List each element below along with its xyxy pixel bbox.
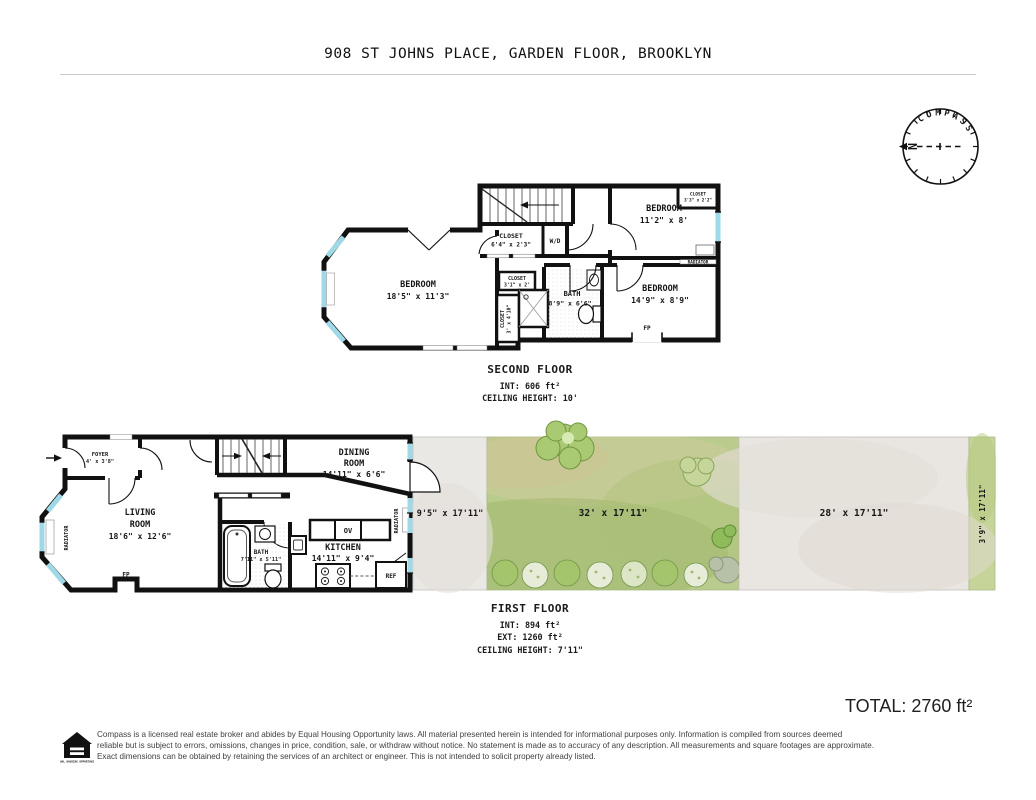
compass-icon: COMPASS N	[892, 98, 989, 195]
room-dims: 7'11" x 5'11"	[241, 557, 282, 563]
room-label: DINING	[339, 448, 370, 458]
disclaimer-line: Compass is a licensed real estate broker…	[97, 729, 981, 740]
floor-int: INT: 606 ft²	[330, 380, 730, 393]
room-label: BATH	[564, 290, 581, 298]
room-dims: 8'9" x 6'6"	[548, 300, 591, 308]
fridge-label: REF	[386, 573, 397, 580]
garden-dims: 32' x 17'11"	[579, 508, 648, 519]
radiator-label: RADIATOR	[64, 525, 70, 551]
floor-heading: SECOND FLOOR	[330, 362, 730, 379]
yard-dims: 28' x 17'11"	[820, 508, 889, 519]
oven-label: OV	[344, 527, 353, 535]
room-dims: 14'9" x 8'9"	[631, 296, 689, 305]
equal-housing-logo-icon: EQUAL HOUSING OPPORTUNITY	[60, 731, 94, 765]
floor-int: INT: 894 ft²	[330, 619, 730, 632]
window-sill	[110, 434, 132, 439]
room-label: CLOSET	[500, 310, 506, 328]
total-area: TOTAL: 2760 ft²	[845, 696, 972, 717]
shower	[519, 290, 548, 327]
room-label: FOYER	[92, 452, 109, 458]
radiator-label: RADIATOR	[688, 259, 709, 265]
bath-sink	[255, 526, 275, 542]
room-label: BEDROOM	[642, 284, 678, 294]
room-dims: 14'11" x 6'6"	[323, 470, 386, 479]
radiator-label: RADIATOR	[394, 508, 400, 534]
room-dims: 11'2" x 8'	[640, 216, 688, 225]
room-dims: 18'6" x 12'6"	[109, 532, 172, 541]
room-dims: 3'3" x 2'2"	[684, 198, 712, 203]
room-label: BATH	[254, 549, 269, 556]
room-label: BEDROOM	[646, 204, 682, 214]
washer-dryer-label: W/D	[550, 238, 561, 245]
toilet	[265, 564, 281, 588]
second-floor-plan: BEDROOM 18'5" x 11'3" CLOSET 6'4" x 2'3"…	[315, 180, 725, 352]
radiator-unit	[696, 245, 714, 255]
bath-sink	[587, 270, 601, 290]
room-label: BEDROOM	[400, 280, 436, 290]
floorplan-page: 908 ST JOHNS PLACE, GARDEN FLOOR, BROOKL…	[0, 0, 1036, 800]
kitchen-sink	[290, 536, 306, 554]
second-floor-stats: SECOND FLOOR INT: 606 ft² CEILING HEIGHT…	[330, 362, 730, 405]
room-dims: 6'4" x 2'3"	[491, 242, 531, 249]
fireplace	[632, 332, 662, 342]
radiator-unit	[46, 520, 54, 554]
bathtub	[224, 526, 250, 586]
fireplace-label: FP	[122, 572, 130, 579]
compass-north-label: N	[905, 143, 919, 150]
fireplace-label: FP	[643, 325, 651, 332]
room-dims: 3'1" x 2'	[504, 283, 530, 289]
floor-ceiling: CEILING HEIGHT: 7'11"	[330, 644, 730, 657]
disclaimer-line: Exact dimensions can be obtained by reta…	[97, 751, 981, 762]
page-title: 908 ST JOHNS PLACE, GARDEN FLOOR, BROOKL…	[0, 46, 1036, 62]
room-label: LIVING	[125, 508, 156, 518]
first-floor-stats: FIRST FLOOR INT: 894 ft² EXT: 1260 ft² C…	[330, 601, 730, 656]
first-floor-plan: 9'5" x 17'11" 32' x 17'11" 28' x 17'11" …	[38, 418, 996, 596]
room-label: CLOSET	[499, 232, 523, 240]
floor-ext: EXT: 1260 ft²	[330, 631, 730, 644]
floor-heading: FIRST FLOOR	[330, 601, 730, 618]
patio-dims: 9'5" x 17'11"	[417, 509, 484, 519]
room-dims: 18'5" x 11'3"	[387, 292, 450, 301]
cased-opening	[214, 493, 290, 499]
room-dims: 14'11" x 9'4"	[312, 554, 375, 563]
disclaimer: Compass is a licensed real estate broker…	[97, 729, 981, 762]
title-divider	[60, 74, 976, 75]
room-label: ROOM	[130, 520, 150, 530]
disclaimer-line: reliable but is subject to errors, omiss…	[97, 740, 981, 751]
room-label: ROOM	[344, 459, 364, 469]
equal-housing-logo-text: EQUAL HOUSING OPPORTUNITY	[60, 760, 94, 764]
room-label: KITCHEN	[325, 543, 361, 553]
room-dims: 3' x 4'10"	[507, 304, 513, 333]
radiator-unit	[327, 273, 335, 305]
room-dims: 4' x 3'8"	[86, 459, 114, 465]
side-strip-dims: 3'9" x 17'11"	[978, 485, 987, 544]
floor-ceiling: CEILING HEIGHT: 10'	[330, 392, 730, 405]
entry-arrow-icon	[54, 454, 62, 461]
stove	[316, 564, 350, 588]
room-label: CLOSET	[508, 276, 526, 282]
